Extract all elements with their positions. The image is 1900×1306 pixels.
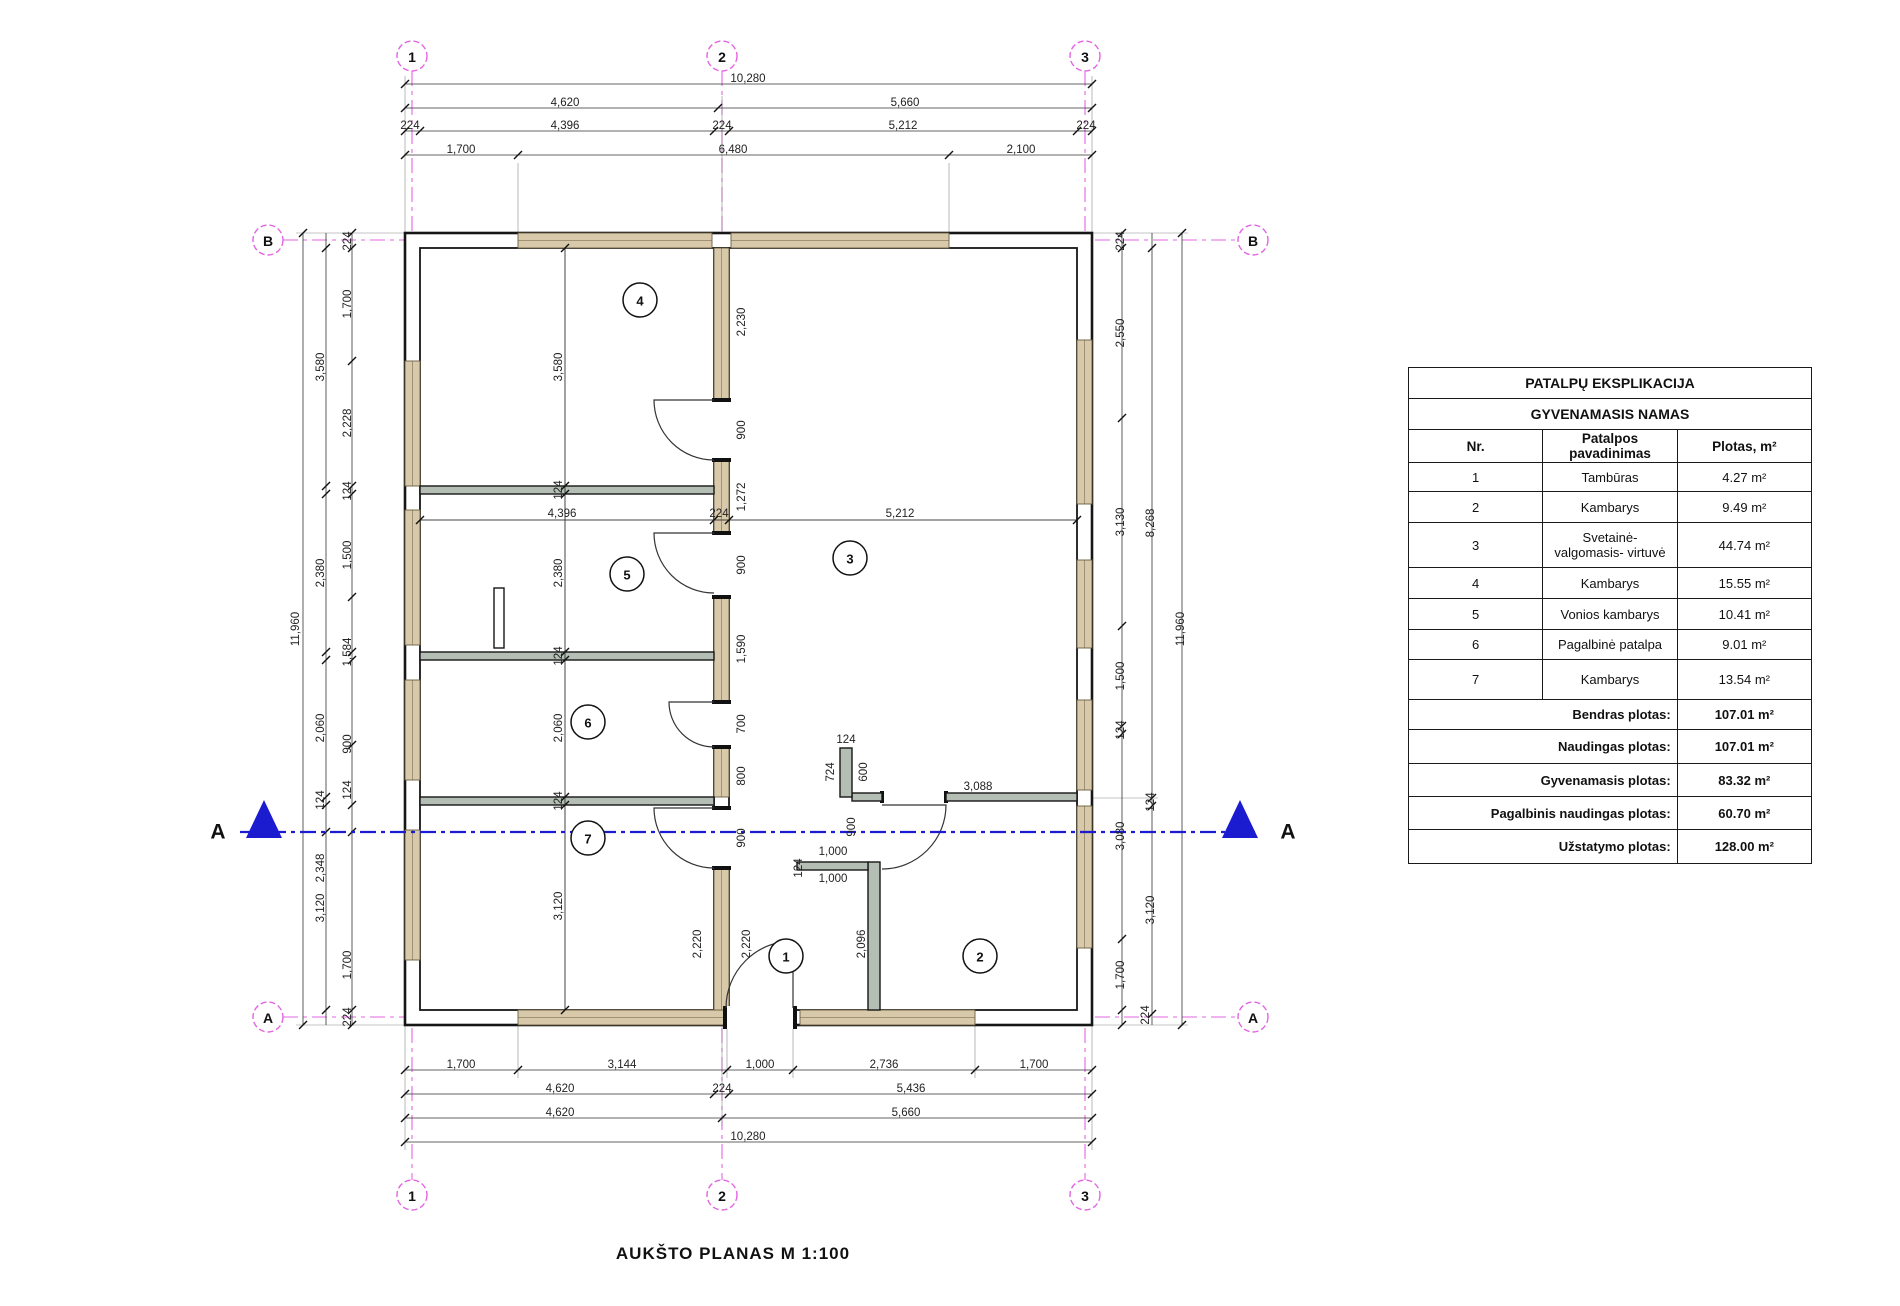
- dimension-label: 2,228: [342, 409, 354, 438]
- col-header-nr: Nr.: [1409, 430, 1543, 463]
- room-number-label: 5: [623, 568, 630, 583]
- room-area: 44.74 m²: [1677, 523, 1811, 568]
- room-area: 13.54 m²: [1677, 660, 1811, 700]
- dimension-label: 5,660: [892, 1107, 921, 1119]
- table-row: 3Svetainė- valgomasis- virtuvė44.74 m²: [1409, 523, 1812, 568]
- room-number-label: 4: [636, 294, 644, 309]
- grid-bubble-label: 1: [408, 49, 416, 65]
- dimension-label: 4,620: [546, 1083, 575, 1095]
- total-label: Pagalbinis naudingas plotas:: [1409, 797, 1678, 830]
- dimension-label: 224: [1140, 1005, 1152, 1025]
- partition-room1-room2: [868, 862, 880, 1010]
- dimension-label: 4,620: [551, 97, 580, 109]
- dimension-label: 900: [846, 817, 858, 836]
- grid-bubble-label: B: [1248, 233, 1258, 249]
- dimension-label: 224: [1115, 231, 1127, 251]
- table-subtitle: GYVENAMASIS NAMAS: [1409, 399, 1812, 430]
- room-area: 15.55 m²: [1677, 568, 1811, 599]
- room-nr: 6: [1409, 630, 1543, 660]
- door-jamb: [712, 866, 731, 870]
- drawing-title: AUKŠTO PLANAS M 1:100: [483, 1244, 983, 1264]
- dimension-label: 5,436: [897, 1083, 926, 1095]
- dimension-label: 3,080: [1115, 822, 1127, 851]
- dimension-label: 3,580: [553, 353, 565, 382]
- door-jamb: [723, 1006, 727, 1029]
- door-gap-room4: [712, 400, 731, 460]
- dimension-label: 124: [793, 858, 805, 878]
- dimension-label: 1,500: [1115, 662, 1127, 691]
- room-explication-table: PATALPŲ EKSPLIKACIJAGYVENAMASIS NAMASNr.…: [1408, 367, 1812, 864]
- inner-wall-face: [420, 248, 1077, 1010]
- room-name: Kambarys: [1543, 492, 1677, 523]
- dimension-label: 124: [315, 790, 327, 810]
- dimension-label: 4,620: [546, 1107, 575, 1119]
- dimension-label: 2,550: [1115, 319, 1127, 348]
- total-value: 83.32 m²: [1677, 764, 1811, 797]
- dimension-label: 124: [553, 646, 565, 666]
- room-nr: 2: [1409, 492, 1543, 523]
- door-gap-room5: [712, 533, 731, 597]
- dimension-label: 900: [736, 828, 748, 847]
- dimension-label: 1,500: [342, 541, 354, 570]
- room-number-label: 2: [976, 950, 983, 965]
- dimension-label: 2,736: [870, 1059, 899, 1071]
- dimension-label: 1,700: [342, 290, 354, 319]
- section-arrow-left: [246, 800, 282, 838]
- drawing-sheet: AA 10,2804,6205,6602244,3962245,2122241,…: [0, 0, 1900, 1306]
- table-row: 5Vonios kambarys10.41 m²: [1409, 599, 1812, 630]
- dimension-label: 5,212: [889, 120, 918, 132]
- section-letter: A: [210, 821, 225, 844]
- dimension-label: 224: [712, 1083, 732, 1095]
- table-title: PATALPŲ EKSPLIKACIJA: [1409, 368, 1812, 399]
- dimension-label: 124: [342, 780, 354, 800]
- dimension-label: 1,000: [819, 846, 848, 858]
- dimension-label: 2,060: [315, 714, 327, 743]
- total-label: Naudingas plotas:: [1409, 730, 1678, 764]
- dimension-label: 2,230: [736, 308, 748, 337]
- dimension-label: 2,348: [315, 854, 327, 883]
- dimension-label: 1,700: [447, 144, 476, 156]
- dimension-label: 224: [342, 1007, 354, 1027]
- table-row: 1Tambūras4.27 m²: [1409, 463, 1812, 492]
- dimension-label: 1,272: [736, 483, 748, 512]
- room-area: 10.41 m²: [1677, 599, 1811, 630]
- dimension-label: 2,100: [1007, 144, 1036, 156]
- door-jamb: [793, 1006, 797, 1029]
- dimension-label: 124: [553, 480, 565, 500]
- total-label: Užstatymo plotas:: [1409, 830, 1678, 864]
- dimension-label: 2,060: [553, 714, 565, 743]
- dimension-label: 4,396: [548, 508, 577, 520]
- dimension-label: 224: [709, 508, 729, 520]
- door-jamb: [712, 806, 731, 810]
- room-nr: 5: [1409, 599, 1543, 630]
- dimension-label: 2,380: [553, 559, 565, 588]
- door-jamb: [712, 458, 731, 462]
- dimension-label: 3,120: [315, 894, 327, 923]
- total-value: 60.70 m²: [1677, 797, 1811, 830]
- grid-bubble-label: 3: [1081, 1188, 1089, 1204]
- total-value: 128.00 m²: [1677, 830, 1811, 864]
- total-value: 107.01 m²: [1677, 700, 1811, 730]
- dimension-label: 5,660: [891, 97, 920, 109]
- dimension-label: 2,096: [856, 930, 868, 959]
- partition-stub-vertical: [840, 748, 852, 797]
- table-total-row: Naudingas plotas:107.01 m²: [1409, 730, 1812, 764]
- room-area: 9.01 m²: [1677, 630, 1811, 660]
- dimension-label: 1,000: [819, 873, 848, 885]
- door-gap-room7: [712, 808, 731, 868]
- dimension-label: 1,700: [1115, 961, 1127, 990]
- total-label: Gyvenamasis plotas:: [1409, 764, 1678, 797]
- room-area: 9.49 m²: [1677, 492, 1811, 523]
- grid-bubble-label: 2: [718, 49, 726, 65]
- door-jamb: [712, 700, 731, 704]
- grid-bubble-label: 2: [718, 1188, 726, 1204]
- dimension-label: 3,580: [315, 353, 327, 382]
- grid-bubble-label: A: [1248, 1010, 1258, 1026]
- partition-room3-room2-left: [852, 793, 882, 801]
- dimension-label: 11,960: [290, 612, 302, 646]
- dimension-label: 1,700: [447, 1059, 476, 1071]
- dimension-label: 2,380: [315, 559, 327, 588]
- dimension-label: 800: [736, 766, 748, 785]
- door-gap-room6: [712, 702, 731, 747]
- table-total-row: Užstatymo plotas:128.00 m²: [1409, 830, 1812, 864]
- room-name: Tambūras: [1543, 463, 1677, 492]
- dimension-label: 2,220: [692, 930, 704, 959]
- grid-bubble-label: 1: [408, 1188, 416, 1204]
- dimension-label: 1,700: [1020, 1059, 1049, 1071]
- room-name: Pagalbinė patalpa: [1543, 630, 1677, 660]
- room-number-label: 7: [584, 832, 591, 847]
- dimension-label: 124: [553, 791, 565, 811]
- door-jamb: [712, 595, 731, 599]
- dimension-label: 3,120: [1145, 896, 1157, 925]
- grid-bubble-label: A: [263, 1010, 273, 1026]
- room-name: Kambarys: [1543, 660, 1677, 700]
- room-number-label: 1: [782, 950, 789, 965]
- grid-bubble-label: B: [263, 233, 273, 249]
- dimension-label: 4,396: [551, 120, 580, 132]
- dimension-label: 5,212: [886, 508, 915, 520]
- table-total-row: Gyvenamasis plotas:83.32 m²: [1409, 764, 1812, 797]
- dimension-label: 900: [736, 555, 748, 574]
- dimension-label: 1,700: [342, 951, 354, 980]
- dimension-label: 124: [1145, 792, 1157, 812]
- dimension-label: 224: [1076, 120, 1096, 132]
- table-row: 6Pagalbinė patalpa9.01 m²: [1409, 630, 1812, 660]
- table-total-row: Bendras plotas:107.01 m²: [1409, 700, 1812, 730]
- room-name: Svetainė- valgomasis- virtuvė: [1543, 523, 1677, 568]
- dimension-label: 124: [1115, 720, 1127, 740]
- dimension-label: 700: [736, 714, 748, 733]
- dimension-label: 600: [858, 762, 870, 781]
- room-number-label: 6: [584, 716, 591, 731]
- dimension-label: 2,220: [741, 930, 753, 959]
- dimension-label: 124: [342, 481, 354, 501]
- room-nr: 1: [1409, 463, 1543, 492]
- dimension-label: 11,960: [1175, 612, 1187, 646]
- dimension-label: 224: [712, 120, 732, 132]
- room-number-label: 3: [846, 552, 853, 567]
- dimension-label: 124: [836, 734, 856, 746]
- section-arrow-right: [1222, 800, 1258, 838]
- dimension-label: 900: [736, 420, 748, 439]
- room-nr: 4: [1409, 568, 1543, 599]
- door-jamb: [712, 531, 731, 535]
- dimension-label: 6,480: [719, 144, 748, 156]
- room-name: Kambarys: [1543, 568, 1677, 599]
- dimension-label: 900: [342, 734, 354, 753]
- duct-stub: [494, 588, 504, 648]
- room-nr: 7: [1409, 660, 1543, 700]
- col-header-name: Patalpos pavadinimas: [1543, 430, 1677, 463]
- room-area: 4.27 m²: [1677, 463, 1811, 492]
- total-label: Bendras plotas:: [1409, 700, 1678, 730]
- dimension-label: 3,144: [608, 1059, 637, 1071]
- col-header-area: Plotas, m²: [1677, 430, 1811, 463]
- dimension-label: 1,000: [746, 1059, 775, 1071]
- total-value: 107.01 m²: [1677, 730, 1811, 764]
- room-name: Vonios kambarys: [1543, 599, 1677, 630]
- dimension-label: 3,120: [553, 892, 565, 921]
- table-row: 4Kambarys15.55 m²: [1409, 568, 1812, 599]
- dimension-label: 224: [400, 120, 420, 132]
- table-row: 2Kambarys9.49 m²: [1409, 492, 1812, 523]
- table-row: 7Kambarys13.54 m²: [1409, 660, 1812, 700]
- dimension-label: 8,268: [1145, 509, 1157, 538]
- room-nr: 3: [1409, 523, 1543, 568]
- grid-bubble-label: 3: [1081, 49, 1089, 65]
- dimension-label: 1,590: [736, 635, 748, 664]
- dimension-label: 724: [825, 762, 837, 782]
- dimension-label: 3,130: [1115, 508, 1127, 537]
- exterior-walls: [405, 233, 1092, 1025]
- door-jamb: [712, 745, 731, 749]
- entry-vestibule-wall: [797, 862, 868, 870]
- dimension-label: 10,280: [730, 1131, 765, 1143]
- entry-door-gap: [725, 1006, 795, 1029]
- dimension-label: 1,584: [342, 637, 354, 666]
- door-jamb: [712, 398, 731, 402]
- dimension-label: 3,088: [964, 781, 993, 793]
- dimension-label: 10,280: [730, 73, 765, 85]
- section-letter: A: [1280, 821, 1295, 844]
- partition-room3-room2-right: [946, 793, 1077, 801]
- table-total-row: Pagalbinis naudingas plotas:60.70 m²: [1409, 797, 1812, 830]
- dimension-label: 224: [342, 231, 354, 251]
